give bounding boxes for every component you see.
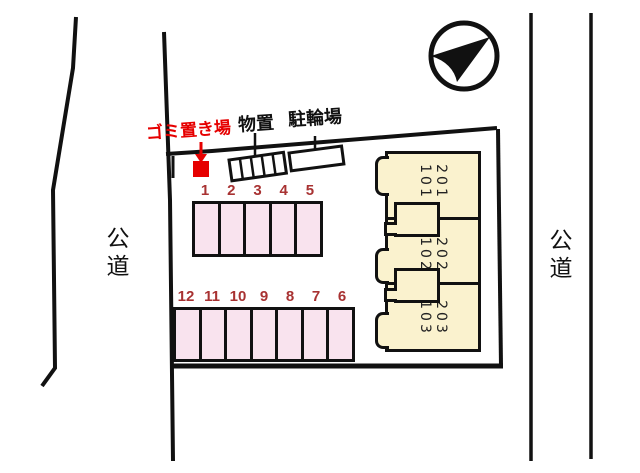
- unit-entrance-bump: [375, 156, 389, 196]
- lower-stall-numbers: 12 11 10 9 8 7 6: [173, 289, 355, 305]
- stall-number: 7: [303, 289, 329, 305]
- compass-north-arrow-icon: [431, 23, 497, 89]
- stall-number: 4: [271, 183, 297, 199]
- building-porch: [394, 202, 440, 237]
- stall-number: 3: [244, 183, 270, 199]
- lower-parking-row: [173, 307, 355, 362]
- parking-stall: [329, 310, 352, 359]
- parking-stall: [278, 310, 304, 359]
- unit-label: 201101: [417, 164, 449, 200]
- building-porch: [394, 268, 440, 303]
- porch-step: [384, 222, 397, 236]
- stall-number: 11: [199, 289, 225, 305]
- parking-stall: [246, 204, 272, 254]
- property-left-boundary-line: [164, 32, 173, 461]
- left-road-edge-line: [42, 17, 76, 386]
- parking-stall: [304, 310, 330, 359]
- porch-step: [384, 288, 397, 302]
- stall-number: 2: [218, 183, 244, 199]
- property-right-boundary-line: [498, 129, 501, 366]
- apartment-building: 201101 202102 203103: [385, 151, 481, 352]
- parking-stall: [202, 310, 228, 359]
- parking-stall: [253, 310, 279, 359]
- parking-stall: [176, 310, 202, 359]
- unit-label: 203103: [417, 300, 449, 336]
- unit-entrance-bump: [375, 312, 389, 349]
- storage-shed-outline: [229, 152, 286, 180]
- stall-number: 10: [225, 289, 251, 305]
- parking-stall: [195, 204, 221, 254]
- bicycle-parking-outline: [289, 146, 344, 171]
- road-label-right: 公道: [542, 228, 576, 284]
- stall-number: 6: [329, 289, 355, 305]
- garbage-area-marker: [193, 161, 209, 177]
- parking-stall: [221, 204, 247, 254]
- road-label-left: 公道: [99, 226, 133, 282]
- bicycle-parking-label: 駐輪場: [287, 102, 343, 132]
- stall-number: 1: [192, 183, 218, 199]
- storage-shed-label: 物置: [237, 109, 275, 137]
- stall-number: 9: [251, 289, 277, 305]
- parking-stall: [272, 204, 298, 254]
- unit-entrance-bump: [375, 248, 389, 284]
- parking-stall: [227, 310, 253, 359]
- stall-number: 8: [277, 289, 303, 305]
- upper-stall-numbers: 1 2 3 4 5: [192, 183, 323, 199]
- upper-parking-row: [192, 201, 323, 257]
- parking-stall: [297, 204, 320, 254]
- stall-number: 12: [173, 289, 199, 305]
- stall-number: 5: [297, 183, 323, 199]
- site-plan: 公道 公道 ゴミ置き場 物置 駐輪場 1 2 3 4 5 12 11 10 9 …: [0, 0, 640, 473]
